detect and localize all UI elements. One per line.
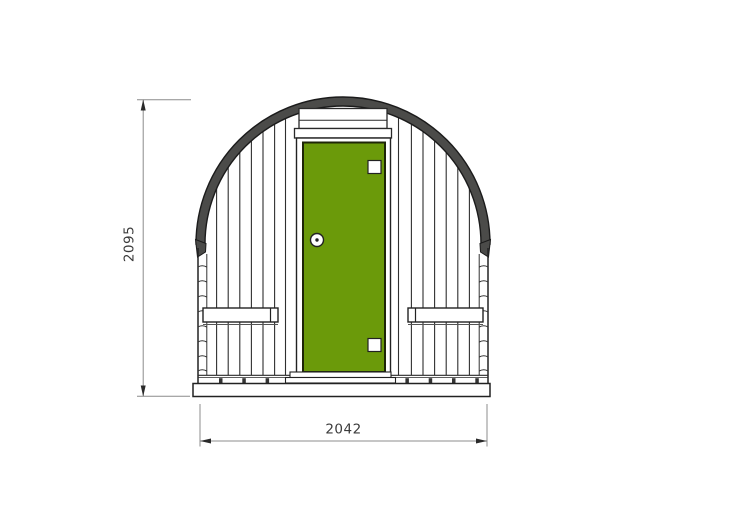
door-threshold-step-upper bbox=[290, 372, 391, 378]
dimension-width-label: 2042 bbox=[325, 422, 361, 438]
door-hinge-icon bbox=[368, 339, 381, 352]
door-leaf bbox=[303, 143, 385, 373]
bench-left bbox=[203, 308, 278, 322]
dimension-arrow-down-icon bbox=[141, 386, 146, 397]
bench-right bbox=[408, 308, 483, 322]
transom-box bbox=[299, 109, 387, 129]
dimension-arrow-right-icon bbox=[476, 439, 487, 444]
door-threshold-step-lower bbox=[286, 378, 396, 384]
pod-front-elevation-svg: 2095 2042 bbox=[0, 0, 750, 510]
door-header-band bbox=[295, 129, 392, 139]
dimension-arrow-up-icon bbox=[141, 100, 146, 111]
door-hinge-icon bbox=[368, 161, 381, 174]
door-handle-pin bbox=[315, 238, 318, 241]
base-skid bbox=[193, 384, 490, 397]
technical-drawing-canvas: 2095 2042 bbox=[0, 0, 750, 510]
dimension-height-label: 2095 bbox=[122, 226, 138, 262]
dimension-height: 2095 bbox=[122, 100, 192, 397]
dimension-width: 2042 bbox=[200, 404, 487, 447]
dimension-arrow-left-icon bbox=[200, 439, 211, 444]
